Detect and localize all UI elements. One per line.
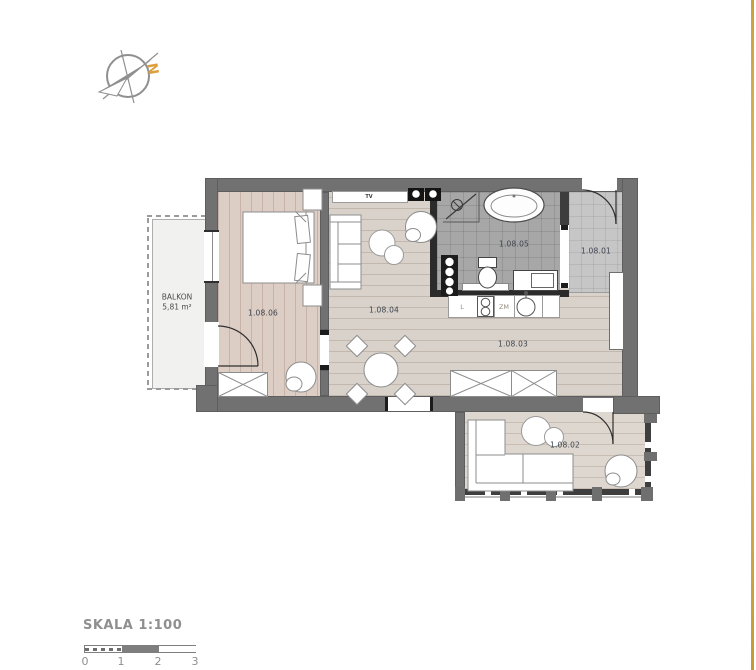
balcony-railing-top [147, 215, 205, 217]
scale-title: SKALA 1:100 [83, 618, 182, 633]
living-terrace-window [385, 397, 433, 411]
scale-tick: 0 [82, 655, 89, 668]
entrance-door-opening [582, 178, 617, 191]
glazing-post [644, 414, 657, 423]
window-cap [430, 397, 433, 411]
wall-top [205, 178, 638, 192]
scale-segment-empty [159, 646, 197, 652]
wall-bedroom-living-upper [320, 192, 329, 330]
counter-divider [542, 296, 543, 317]
glazing-post [455, 487, 465, 501]
room-label-living: 1.08.04 [369, 306, 399, 315]
glazing-post [592, 487, 602, 501]
room-label-kitchen-dining: 1.08.03 [498, 340, 528, 349]
terrace-door-opening [583, 398, 613, 412]
scale-tick: 1 [118, 655, 125, 668]
wall-bedroom-living-lower [320, 370, 329, 396]
wall-right [622, 178, 638, 414]
counter-divider [494, 296, 495, 317]
balcony-area: 5,81 m² [162, 302, 192, 312]
glazing-post [644, 452, 657, 461]
slider-cap [561, 283, 568, 288]
wall-stub-bottom-left [196, 385, 218, 412]
glazing-post [546, 487, 556, 501]
bathroom-sliding-door [560, 225, 569, 288]
bedroom-floor [218, 192, 320, 396]
room-label-bathroom: 1.08.05 [499, 240, 529, 249]
counter-divider [514, 296, 515, 317]
slider-cap [561, 225, 568, 230]
scale-segment-dashed [85, 646, 122, 652]
scale-tick: 3 [192, 655, 199, 668]
balcony-railing-left [147, 218, 149, 388]
balcony-label: BALKON 5,81 m² [162, 292, 192, 312]
tv-label: TV [365, 194, 372, 200]
room-label-hall: 1.08.01 [581, 247, 611, 256]
bathroom-shelf [462, 283, 509, 291]
slider-cap [320, 365, 329, 370]
wall-terrace-left [455, 412, 465, 489]
balcony-door-opening [204, 322, 219, 367]
compass-north-label: N [143, 62, 161, 76]
scale-bar [84, 645, 196, 653]
wall-bathroom-left [430, 192, 437, 297]
glazing-post [641, 487, 653, 501]
wall-terrace-top-right [613, 396, 660, 414]
bedroom-sliding-door [320, 330, 329, 370]
floorplan-canvas: N [0, 0, 756, 670]
wall-bathroom-hall [560, 192, 569, 225]
room-label-terrace: 1.08.02 [550, 441, 580, 450]
hall-wardrobe [609, 272, 624, 350]
dishwasher-label: ZM [499, 303, 509, 311]
room-label-bedroom: 1.08.06 [248, 309, 278, 318]
scale-segment-filled [122, 646, 159, 652]
fridge-label: L [460, 303, 464, 311]
wall-left [205, 178, 218, 412]
glazing-post [500, 487, 510, 501]
toilet-cistern [478, 257, 497, 268]
gold-edge-line [751, 0, 754, 670]
terrace-floor [465, 412, 646, 489]
bedroom-window [204, 230, 219, 283]
vanity-sink [531, 273, 554, 288]
window-cap [385, 397, 388, 411]
balcony-name: BALKON [162, 292, 192, 302]
scale-tick: 2 [155, 655, 162, 668]
compass-rose: N [99, 50, 161, 103]
counter-divider [477, 296, 478, 317]
slider-cap [320, 330, 329, 335]
